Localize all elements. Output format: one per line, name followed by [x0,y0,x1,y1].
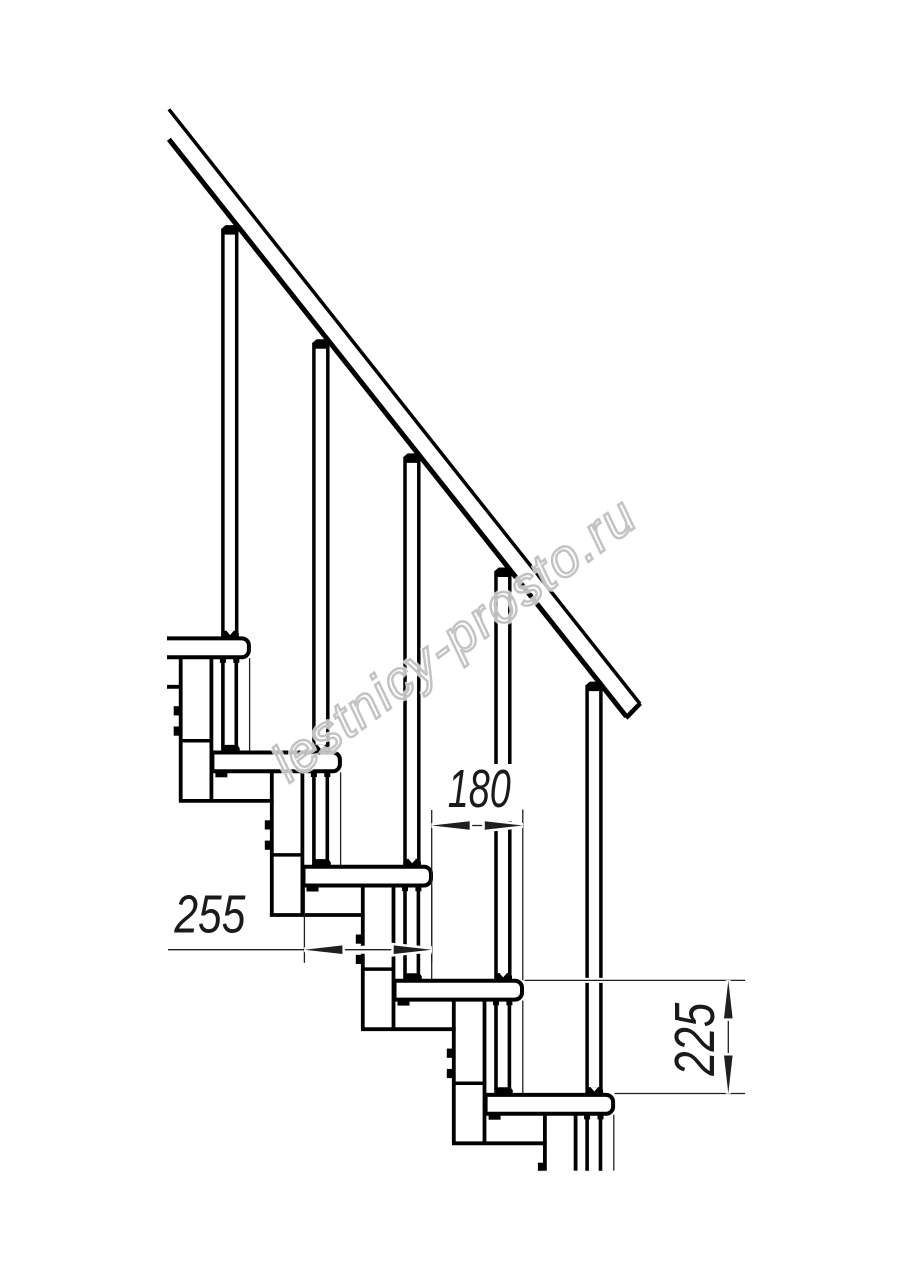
svg-text:180: 180 [448,759,511,819]
svg-text:255: 255 [174,885,247,945]
svg-text:225: 225 [663,1003,727,1077]
